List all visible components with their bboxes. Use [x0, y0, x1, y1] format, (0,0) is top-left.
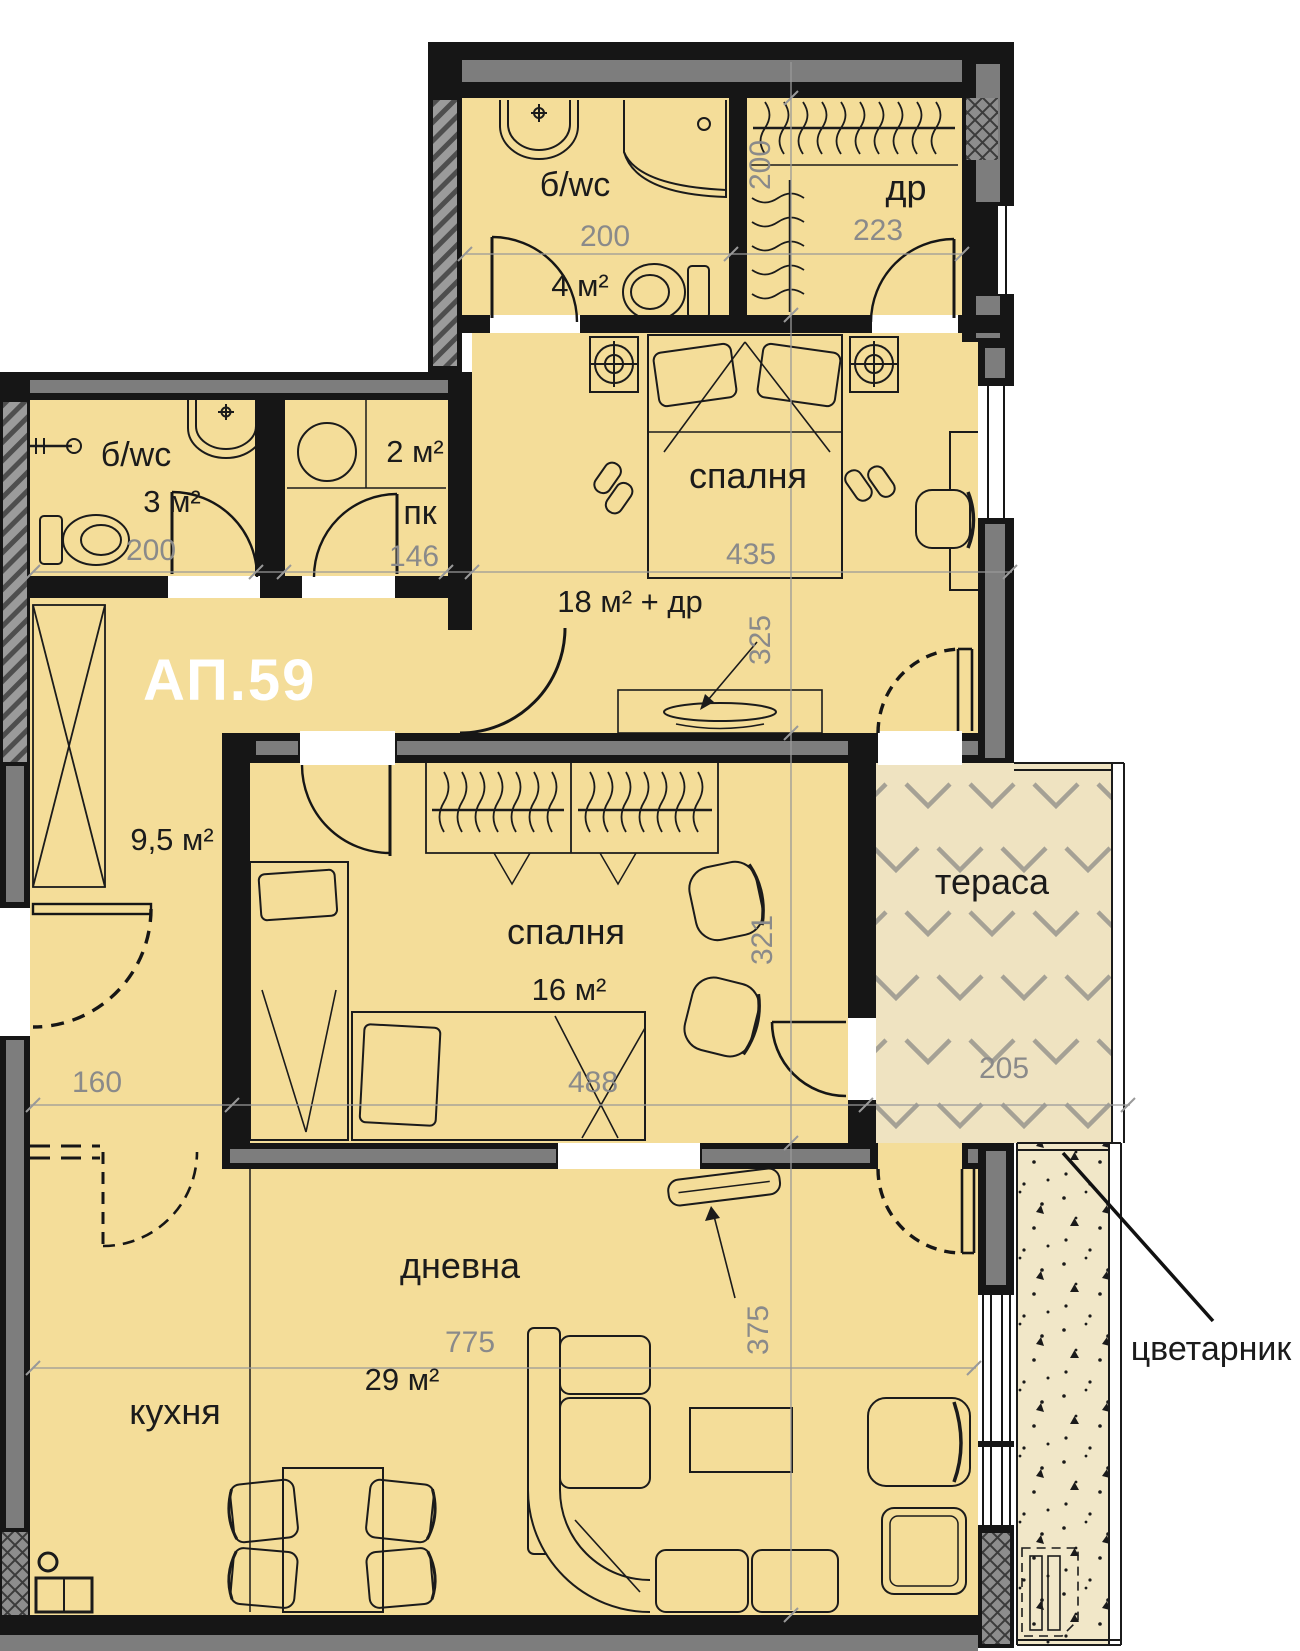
- hall-width-dim: 160: [72, 1066, 122, 1099]
- wall-bath-pantry-divider: [255, 400, 285, 576]
- bath-top-label: б/wc: [540, 166, 610, 204]
- wall-hall-bedroom-main: [448, 372, 472, 630]
- nightstand-right: [850, 337, 898, 392]
- terrace-width-dim: 205: [979, 1052, 1029, 1085]
- bedroom-second-depth-dim: 321: [746, 915, 779, 965]
- bath-hall-label: б/wc: [101, 436, 171, 474]
- floor-plan-page: б/wc 200 4 м² др 223 200 спалня 435 18 м…: [0, 0, 1300, 1651]
- coffee-table: [690, 1408, 792, 1472]
- closet-label: др: [885, 167, 926, 208]
- living-armchair: [868, 1398, 970, 1486]
- bedroom-main-depth-dim: 325: [744, 615, 777, 665]
- hall-wardrobe: [33, 605, 105, 887]
- living-depth-dim: 375: [742, 1305, 775, 1355]
- bedroom-second-width-dim: 488: [568, 1066, 618, 1099]
- terrace-tile-pattern: [876, 763, 1112, 1143]
- closet-depth-dim: 200: [744, 140, 777, 190]
- living-width-dim: 775: [445, 1326, 495, 1359]
- floor-plan-drawing: б/wc 200 4 м² др 223 200 спалня 435 18 м…: [0, 0, 1300, 1651]
- living-label: дневна: [400, 1245, 521, 1286]
- bath-top-width-dim: 200: [580, 220, 630, 253]
- bath-hall-width-dim: 200: [126, 534, 176, 567]
- terrace-label: тераса: [935, 861, 1050, 902]
- closet-width-dim: 223: [853, 214, 903, 247]
- bedroom-second-area: 16 м²: [532, 972, 607, 1007]
- pantry-label: пк: [403, 494, 437, 532]
- nightstand-left: [590, 337, 638, 392]
- living-kitchen-area: 29 м²: [365, 1362, 440, 1397]
- bedroom-main-label: спалня: [689, 455, 807, 496]
- window-living-east: [978, 1289, 1014, 1531]
- side-table: [882, 1508, 966, 1594]
- pantry-area: 2 м²: [386, 434, 444, 469]
- wall-bottom-exterior: [0, 1615, 980, 1635]
- apartment-number: АП.59: [143, 648, 316, 713]
- planter-gravel-pattern: [1017, 1143, 1109, 1645]
- bedroom-main-area: 18 м² + др: [557, 584, 702, 619]
- bedroom-second-label: спалня: [507, 911, 625, 952]
- window-bedroom-main-east: [978, 342, 1014, 763]
- bedroom-main-width-dim: 435: [726, 538, 776, 571]
- pantry-width-dim: 146: [389, 540, 439, 573]
- bath-top-area: 4 м²: [551, 268, 609, 303]
- planter-label: цветарник: [1131, 1330, 1293, 1368]
- desk-chair: [916, 490, 974, 548]
- wall-bedroom-second-west: [222, 733, 250, 1143]
- single-bed-vertical: [250, 862, 348, 1140]
- kitchen-label: кухня: [129, 1391, 221, 1432]
- hall-area: 9,5 м²: [130, 822, 213, 857]
- wall-bath-closet-divider: [729, 98, 747, 315]
- bath-hall-area: 3 м²: [143, 484, 201, 519]
